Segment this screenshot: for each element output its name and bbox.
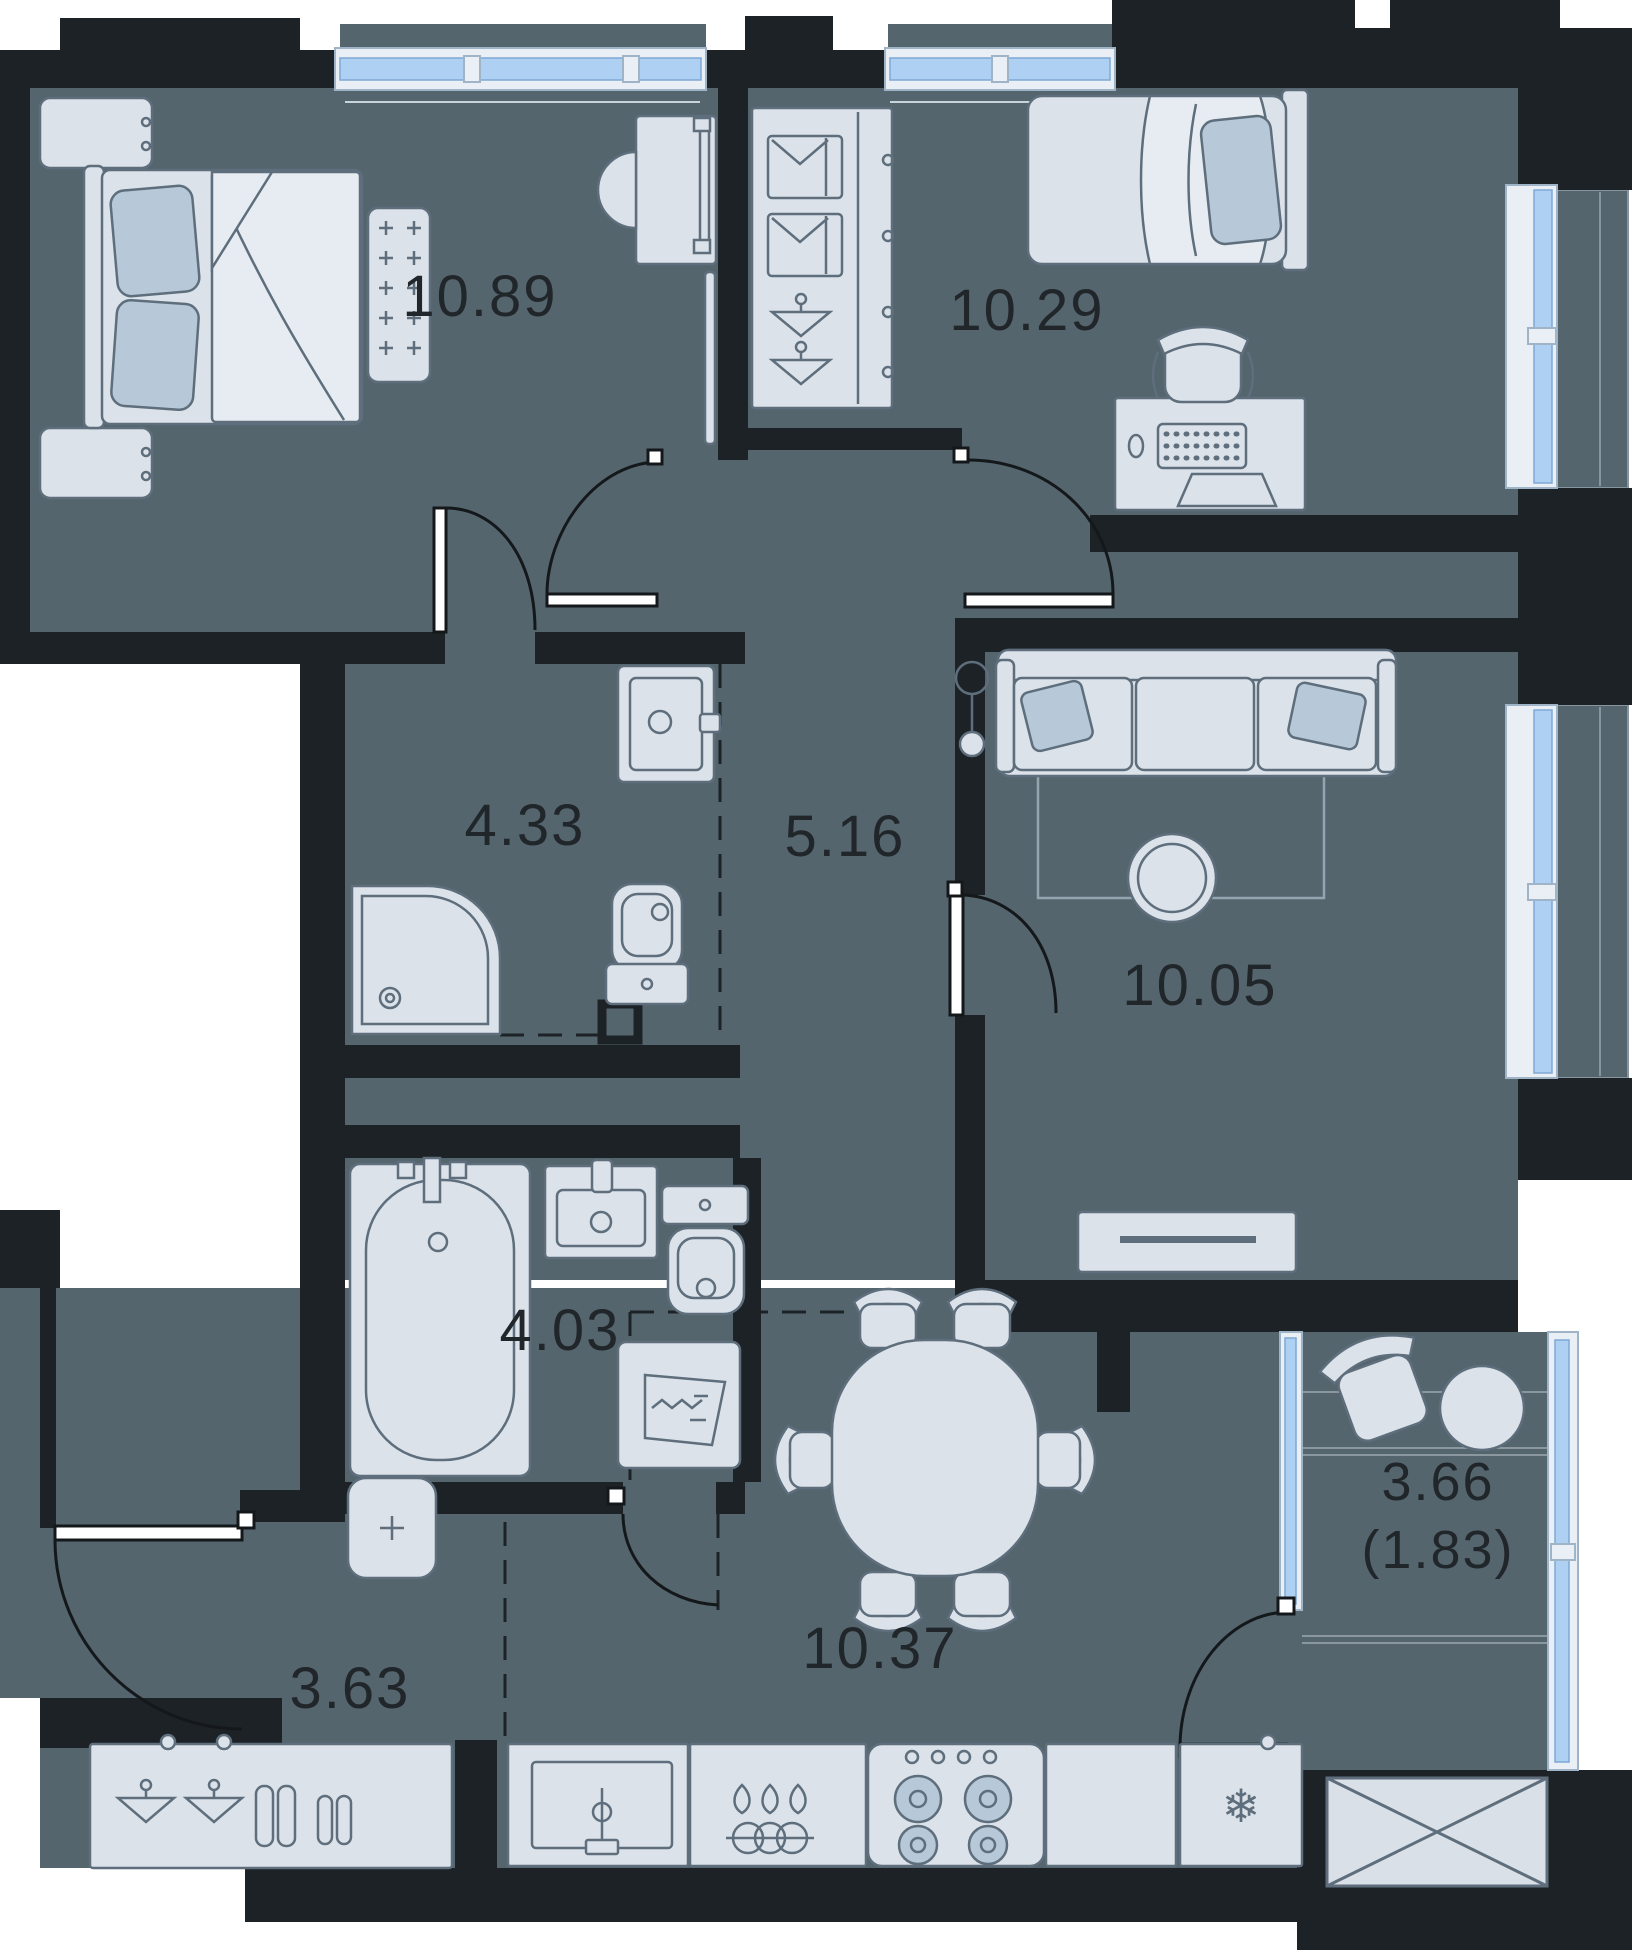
kitchen-counter: ❄ bbox=[508, 1735, 1302, 1866]
sofa-back bbox=[998, 650, 1396, 680]
kitchen-cabinet-glassware bbox=[690, 1744, 866, 1866]
mirror bbox=[705, 272, 715, 444]
floor-plan-page: 10.89 bbox=[0, 0, 1632, 1950]
dining-table bbox=[832, 1340, 1038, 1576]
window-living-side bbox=[1506, 705, 1557, 1078]
fridge: ❄ bbox=[1180, 1735, 1302, 1866]
fridge-handle bbox=[1261, 1735, 1275, 1749]
ac-unit bbox=[1327, 1778, 1547, 1886]
pillow bbox=[110, 299, 199, 410]
floor-plan-canvas: 10.89 bbox=[0, 0, 1632, 1950]
sofa-armrest bbox=[1378, 660, 1396, 772]
balcony-glazing-left bbox=[1280, 1332, 1302, 1610]
snowflake-icon: ❄ bbox=[1222, 1779, 1261, 1833]
burner-icon bbox=[895, 1776, 941, 1822]
window-recess-1 bbox=[340, 24, 706, 50]
sofa bbox=[996, 650, 1396, 776]
room-label-bathroom-2: 4.03 bbox=[500, 1298, 621, 1363]
pillow bbox=[1020, 679, 1095, 752]
bathtub-faucet bbox=[424, 1158, 440, 1202]
kitchen-sink bbox=[508, 1744, 688, 1866]
burner-icon bbox=[899, 1826, 937, 1864]
dining-chair bbox=[948, 1289, 1016, 1348]
room-label-bathroom-1: 4.33 bbox=[465, 793, 586, 858]
room-label-entry-hall: 3.63 bbox=[290, 1656, 411, 1721]
toilet-bowl bbox=[668, 1228, 744, 1314]
wardrobe bbox=[752, 108, 893, 408]
nightstand bbox=[40, 428, 152, 498]
loggia-strip-mid bbox=[1557, 705, 1628, 1078]
window-recess-2 bbox=[888, 24, 1112, 50]
burner-icon bbox=[965, 1776, 1011, 1822]
burner-icon bbox=[969, 1826, 1007, 1864]
nightstand bbox=[40, 98, 152, 168]
room-label-kitchen-dining: 10.37 bbox=[802, 1616, 957, 1681]
balcony-table bbox=[1440, 1366, 1524, 1450]
washbasin bbox=[618, 666, 720, 782]
sofa-armrest bbox=[996, 660, 1014, 772]
window-bedroom-2-side bbox=[1506, 185, 1557, 488]
dining-chair bbox=[775, 1426, 834, 1494]
office-chair bbox=[1153, 327, 1253, 402]
room-label-balcony-reduced: (1.83) bbox=[1361, 1520, 1514, 1580]
knob-icon bbox=[161, 1735, 175, 1749]
tv-console bbox=[1078, 1212, 1296, 1272]
double-bed bbox=[84, 166, 362, 428]
single-bed bbox=[1028, 90, 1308, 270]
room-hallway: 5.16 bbox=[785, 804, 906, 869]
washbasin bbox=[545, 1160, 657, 1258]
balcony-glazing-right bbox=[1548, 1332, 1578, 1770]
room-label-hallway: 5.16 bbox=[785, 804, 906, 869]
stool bbox=[348, 1478, 436, 1578]
monitor bbox=[1178, 474, 1276, 506]
shoe-cabinet bbox=[90, 1735, 452, 1868]
tv bbox=[1120, 1236, 1256, 1243]
room-label-bedroom-2: 10.29 bbox=[949, 278, 1104, 343]
stove bbox=[868, 1744, 1044, 1866]
faucet bbox=[592, 1160, 612, 1192]
dining-chair bbox=[948, 1572, 1016, 1631]
knob-icon bbox=[217, 1735, 231, 1749]
sofa-seat bbox=[1136, 678, 1254, 770]
washing-machine bbox=[618, 1342, 740, 1468]
coffee-table bbox=[1128, 834, 1216, 922]
pillow bbox=[110, 185, 201, 298]
toilet bbox=[606, 884, 688, 1004]
loggia-strip-top bbox=[1557, 190, 1628, 488]
toilet-tank bbox=[662, 1186, 748, 1224]
dining-chair bbox=[854, 1289, 922, 1348]
dining-chair bbox=[1036, 1426, 1095, 1494]
toilet bbox=[662, 1186, 748, 1314]
room-label-bedroom-1: 10.89 bbox=[402, 264, 557, 329]
room-label-living-room: 10.05 bbox=[1122, 953, 1277, 1018]
faucet bbox=[700, 714, 720, 732]
room-label-balcony: 3.66 bbox=[1381, 1452, 1494, 1512]
counter bbox=[1046, 1744, 1176, 1866]
pillow bbox=[1200, 115, 1283, 246]
toilet-tank bbox=[606, 964, 688, 1004]
shower bbox=[352, 886, 500, 1034]
